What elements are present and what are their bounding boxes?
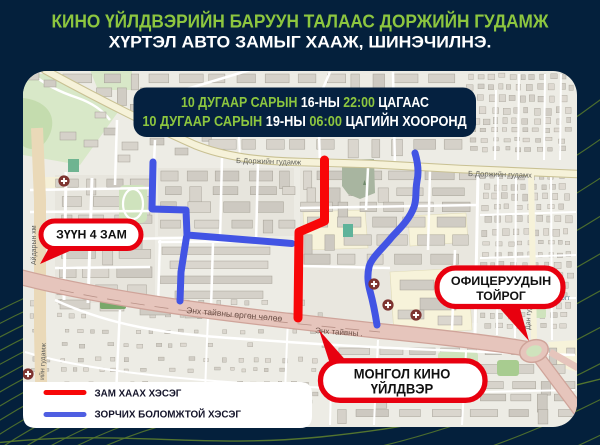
svg-text:ЗҮҮН 4 ЗАМ: ЗҮҮН 4 ЗАМ xyxy=(56,228,127,242)
svg-text:Айдарын хм: Айдарын хм xyxy=(30,225,38,265)
svg-text:10 ДУГААР САРЫН 19-НЫ 06:00 ЦА: 10 ДУГААР САРЫН 19-НЫ 06:00 ЦАГИЙН ХООРО… xyxy=(142,111,466,129)
svg-text:Б.Доржийн гудамх: Б.Доржийн гудамх xyxy=(468,169,532,180)
svg-text:ОФИЦЕРУУДЫН: ОФИЦЕРУУДЫН xyxy=(451,274,551,288)
svg-text:МОНГОЛ КИНО: МОНГОЛ КИНО xyxy=(354,366,451,382)
svg-text:ЗОРЧИХ БОЛОМЖТОЙ ХЭСЭГ: ЗОРЧИХ БОЛОМЖТОЙ ХЭСЭГ xyxy=(95,407,242,420)
svg-text:ҮЙЛДВЭР: ҮЙЛДВЭР xyxy=(371,381,434,396)
svg-text:ЗАМ ХААХ ХЭСЭГ: ЗАМ ХААХ ХЭСЭГ xyxy=(95,388,182,399)
svg-text:ТОЙРОГ: ТОЙРОГ xyxy=(476,288,526,303)
svg-text:10 ДУГААР САРЫН 16-НЫ 22:00 ЦА: 10 ДУГААР САРЫН 16-НЫ 22:00 ЦАГААС xyxy=(181,93,429,111)
svg-text:КИНО ҮЙЛДВЭРИЙН БАРУУН ТАЛААС: КИНО ҮЙЛДВЭРИЙН БАРУУН ТАЛААС ДОРЖИЙН ГУ… xyxy=(52,10,550,32)
svg-text:ХҮРТЭЛ АВТО ЗАМЫГ ХААЖ, ШИНЭЧИ: ХҮРТЭЛ АВТО ЗАМЫГ ХААЖ, ШИНЭЧИЛНЭ. xyxy=(109,33,492,51)
svg-text:Б.Доржийн гудамж: Б.Доржийн гудамж xyxy=(236,156,301,167)
